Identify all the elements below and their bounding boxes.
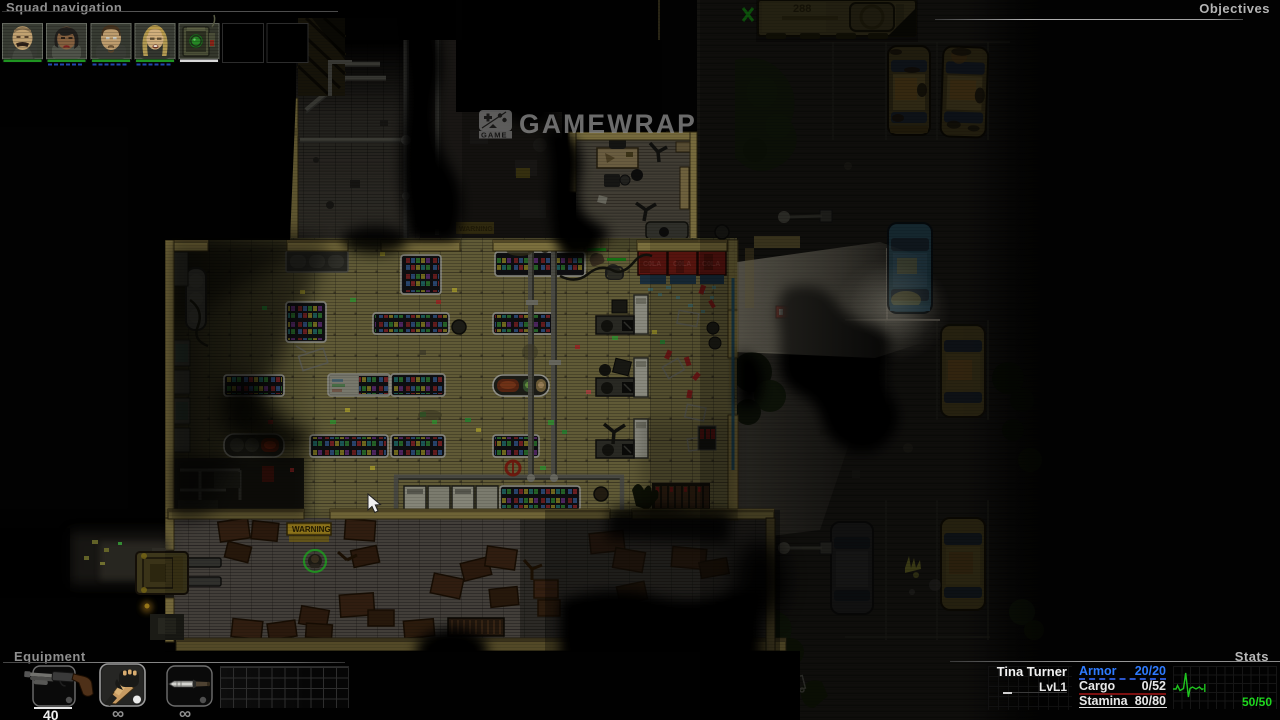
svg-text:GAME: GAME — [481, 131, 508, 140]
svg-text:GAMEWRAP: GAMEWRAP — [519, 109, 697, 139]
svg-text:∞: ∞ — [112, 704, 124, 720]
svg-text:40: 40 — [43, 707, 59, 720]
svg-text:∞: ∞ — [179, 704, 191, 720]
